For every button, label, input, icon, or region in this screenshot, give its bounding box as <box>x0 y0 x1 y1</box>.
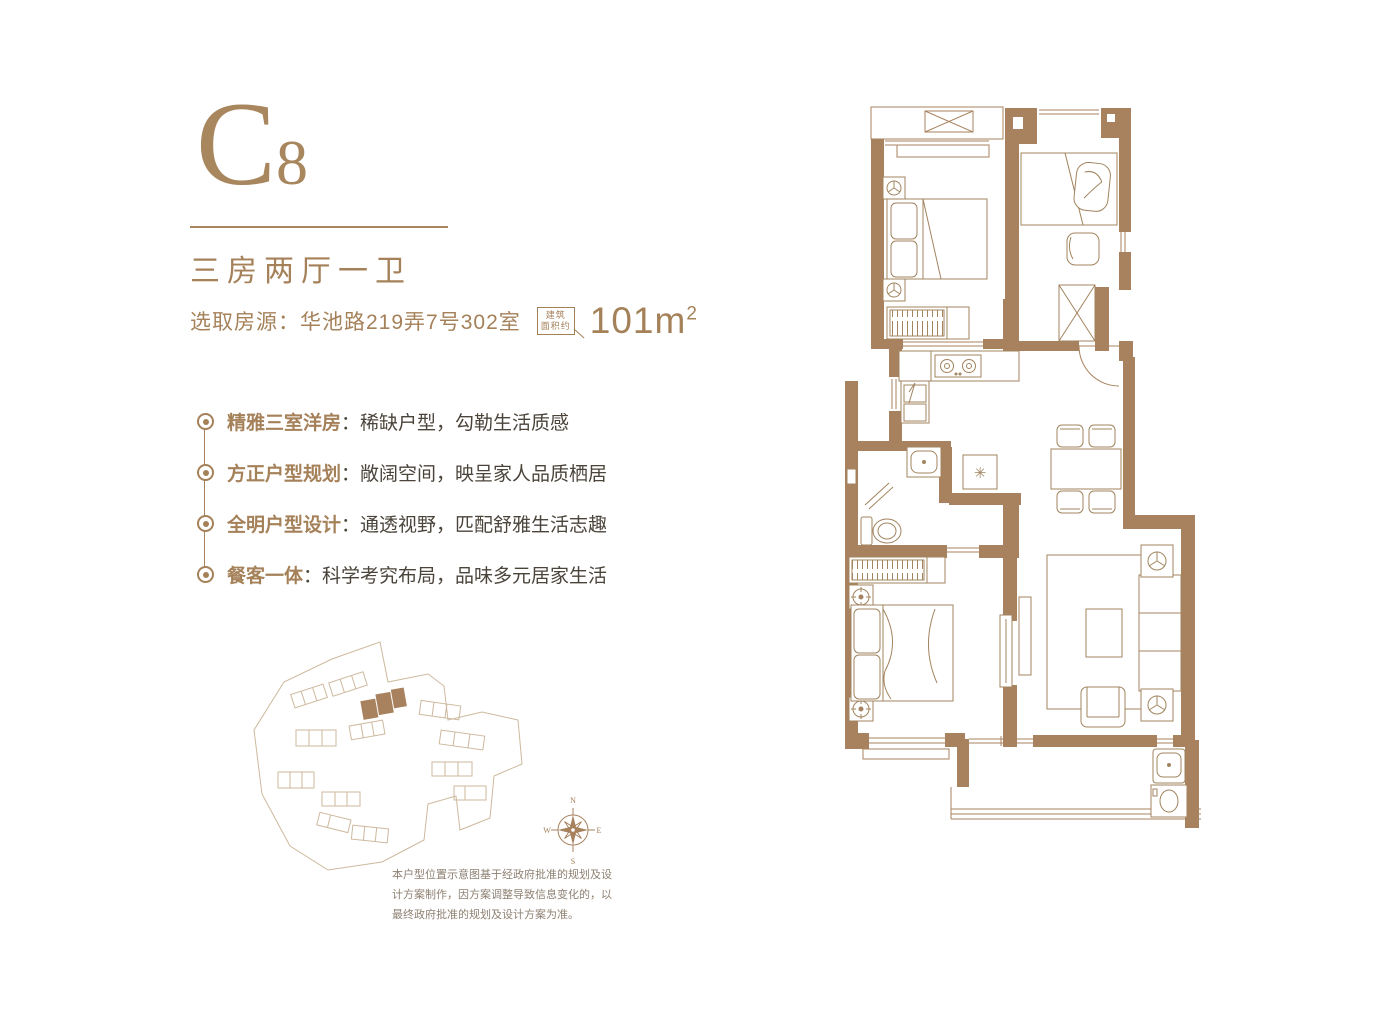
area-sup: 2 <box>686 304 698 325</box>
bed-double-top <box>887 199 987 279</box>
washing-machine-icon <box>1151 785 1187 817</box>
wardrobe-master <box>849 557 945 583</box>
toilet-icon <box>861 517 901 545</box>
dining-chair <box>1057 425 1083 447</box>
feature-desc: ：通透视野，匹配舒雅生活志趣 <box>341 515 607 536</box>
feature-connector-line <box>204 423 205 577</box>
compass-e: E <box>597 826 602 835</box>
side-table-lamp-icon <box>1141 689 1173 721</box>
ac-platform <box>871 107 1003 139</box>
wardrobe-top <box>887 307 969 339</box>
area-badge-line1: 建筑 <box>541 310 571 321</box>
area-badge-line2: 面积约 <box>541 321 571 332</box>
site-plan-map <box>232 634 532 889</box>
compass-w: W <box>543 826 551 835</box>
armchair <box>1081 687 1125 727</box>
sofa <box>1139 575 1181 691</box>
ceiling-lamp-icon <box>883 177 905 199</box>
side-table-lamp-icon <box>1141 545 1173 577</box>
folding-door <box>865 483 893 509</box>
source-address: 选取房源：华池路219弄7号302室 <box>190 306 521 336</box>
floor-plan: ✳ <box>835 95 1215 835</box>
feature-label: 餐客一体 <box>227 566 303 587</box>
feature-desc: ：科学考究布局，品味多元居家生活 <box>303 566 607 587</box>
layout-type: 三房两厅一卫 <box>190 246 412 290</box>
kitchen-counter <box>899 351 1019 381</box>
tv-cabinet <box>1019 597 1031 675</box>
stove-icon <box>935 355 981 377</box>
area-value: 101m2 <box>590 300 698 342</box>
feature-desc: ：敞阔空间，映呈家人品质栖居 <box>341 464 607 485</box>
badge-slash <box>573 328 584 338</box>
dining-table <box>1051 449 1121 489</box>
wall-fixture <box>847 469 856 484</box>
source-row: 选取房源：华池路219弄7号302室 建筑 面积约 101m2 <box>190 300 698 342</box>
unit-code-letter: C <box>196 77 276 210</box>
feature-desc: ：稀缺户型，勾勒生活质感 <box>341 413 569 434</box>
bullet-icon <box>197 566 214 583</box>
highlighted-building <box>360 688 407 719</box>
bed-double-master <box>851 605 953 701</box>
feature-item: 全明户型设计：通透视野，匹配舒雅生活志趣 <box>197 509 677 538</box>
compass-n: N <box>570 796 576 805</box>
dining-chair <box>1089 425 1115 447</box>
desk-chair <box>1067 233 1099 265</box>
coffee-table <box>1086 609 1122 657</box>
feature-label: 精雅三室洋房 <box>227 413 341 434</box>
feature-item: 餐客一体：科学考究布局，品味多元居家生活 <box>197 560 677 589</box>
feature-label: 方正户型规划 <box>227 464 341 485</box>
floorplan-page: C8 三房两厅一卫 选取房源：华池路219弄7号302室 建筑 面积约 101m… <box>0 0 1400 1014</box>
feature-label: 全明户型设计 <box>227 515 341 536</box>
area-badge: 建筑 面积约 <box>537 307 575 335</box>
bullet-icon <box>197 515 214 532</box>
title-underline <box>190 226 448 228</box>
unit-code: C8 <box>196 84 308 204</box>
dining-chair <box>1057 491 1083 513</box>
curtain-box <box>897 145 989 157</box>
bed-single <box>1021 153 1117 225</box>
dining-chair <box>1089 491 1115 513</box>
entry-door <box>1079 346 1119 386</box>
feature-item: 方正户型规划：敞阔空间，映呈家人品质栖居 <box>197 458 677 487</box>
disclaimer-text: 本户型位置示意图基于经政府批准的规划及设计方案制作，因方案调整导致信息变化的，以… <box>392 866 622 925</box>
feature-list: 精雅三室洋房：稀缺户型，勾勒生活质感 方正户型规划：敞阔空间，映呈家人品质栖居 … <box>197 407 677 611</box>
laundry-sink-icon <box>1153 749 1185 783</box>
ceiling-lamp-icon <box>883 279 905 301</box>
unit-code-number: 8 <box>276 127 308 198</box>
bullet-icon <box>197 464 214 481</box>
hall-closet <box>1059 285 1095 341</box>
washbasin-icon <box>907 447 941 477</box>
kitchen-sink <box>901 381 929 423</box>
feature-item: 精雅三室洋房：稀缺户型，勾勒生活质感 <box>197 407 677 436</box>
sliding-door-panel <box>1000 615 1012 687</box>
bullet-icon <box>197 413 214 430</box>
fridge-symbol: ✳ <box>974 465 987 482</box>
compass-s: S <box>571 857 575 866</box>
compass-icon: N S W E <box>543 792 603 868</box>
